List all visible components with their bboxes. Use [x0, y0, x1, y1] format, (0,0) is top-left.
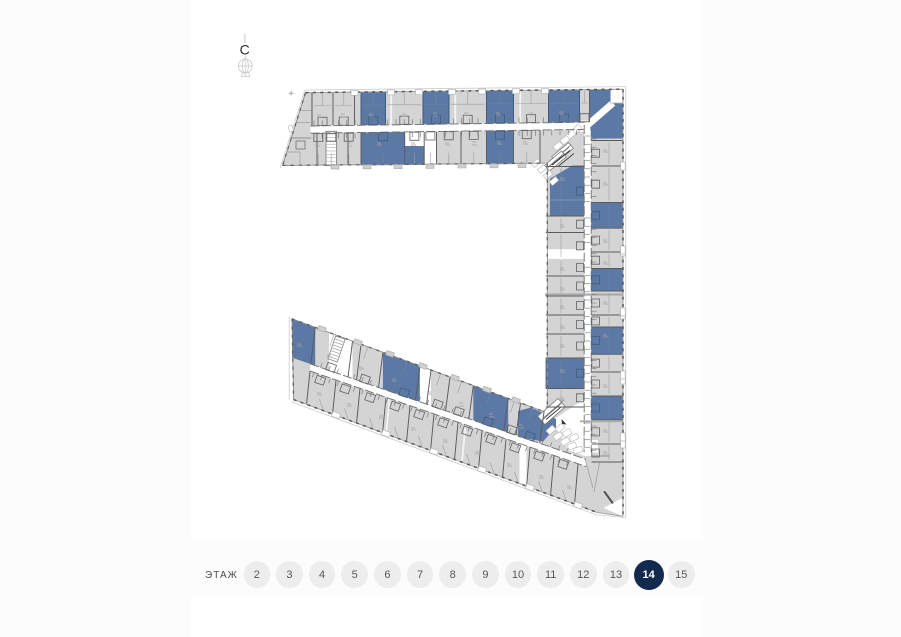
svg-text:С: С: [240, 42, 250, 58]
